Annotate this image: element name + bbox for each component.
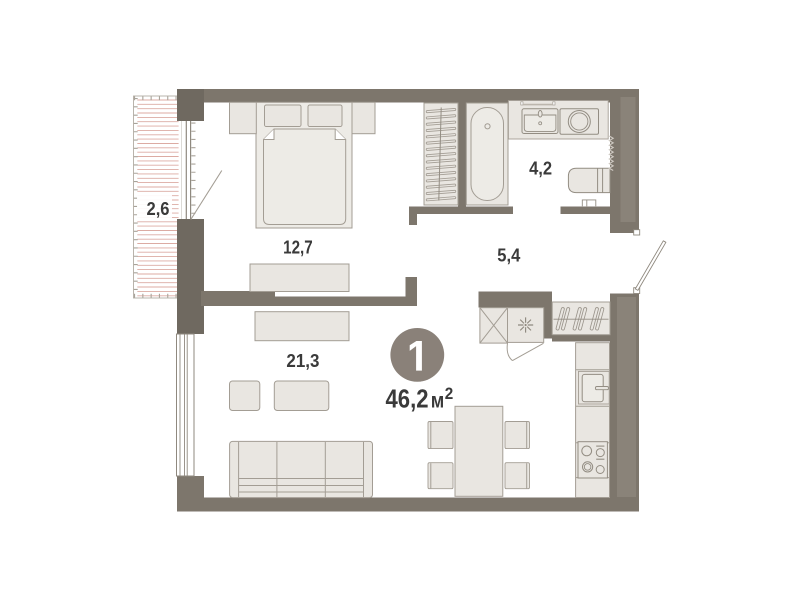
svg-text:46,2: 46,2	[386, 386, 429, 414]
svg-text:21,3: 21,3	[286, 350, 319, 371]
svg-text:м: м	[431, 389, 445, 413]
svg-text:4,2: 4,2	[529, 158, 552, 179]
svg-text:2: 2	[445, 385, 454, 403]
svg-text:5,4: 5,4	[497, 244, 521, 265]
svg-text:12,7: 12,7	[283, 236, 313, 257]
svg-text:2,6: 2,6	[147, 198, 170, 219]
